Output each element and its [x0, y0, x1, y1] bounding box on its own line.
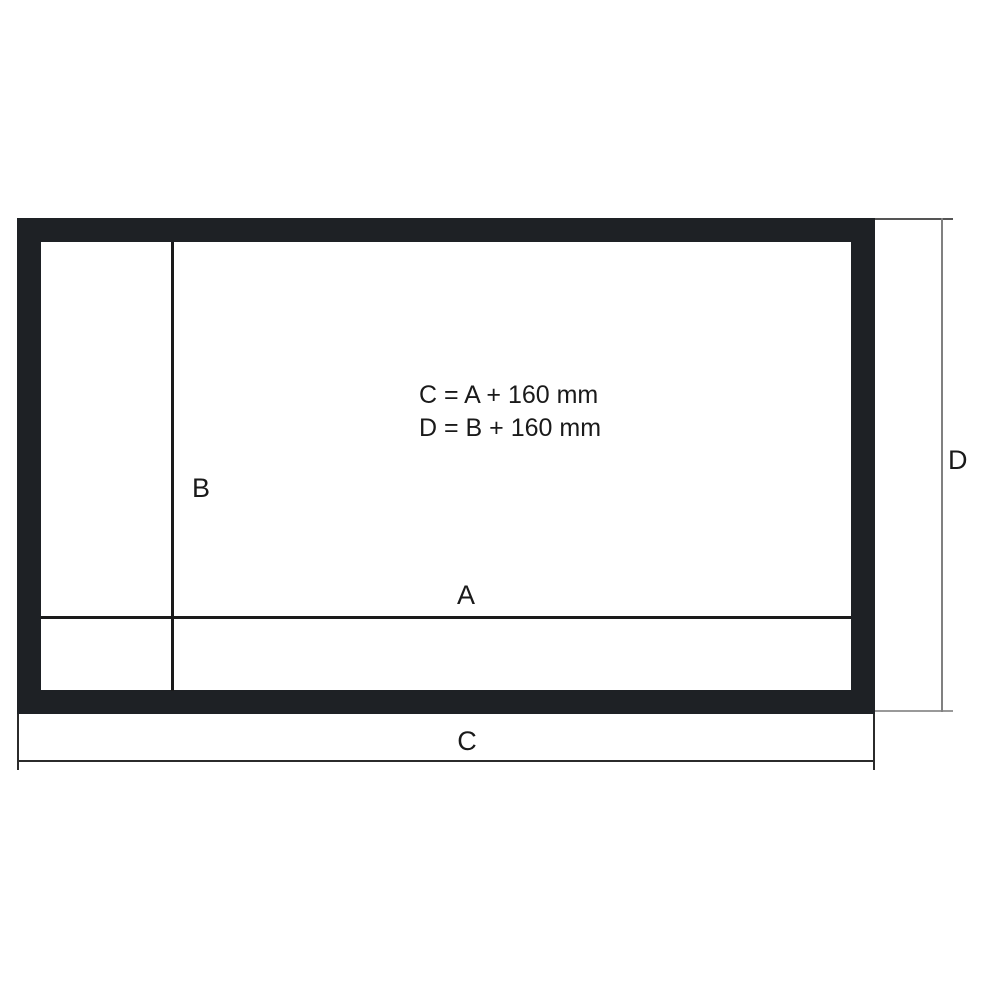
d-dimension-line	[941, 218, 943, 712]
screen-frame	[17, 218, 875, 714]
label-viewing-width: A	[426, 582, 506, 609]
outer-height-formula: D = B + 160 mm	[419, 412, 601, 445]
viewing-width-line	[41, 616, 851, 619]
c-dimension-line	[17, 760, 875, 762]
viewing-height-line	[171, 242, 174, 691]
outer-width-formula: C = A + 160 mm	[419, 379, 601, 412]
label-outer-width: C	[427, 728, 507, 755]
screen-dimension-diagram: C = A + 160 mm D = B + 160 mm B A C D	[0, 0, 987, 987]
label-outer-height: D	[948, 447, 968, 474]
label-viewing-height: B	[192, 475, 210, 502]
dimension-formulas: C = A + 160 mm D = B + 160 mm	[419, 379, 601, 445]
